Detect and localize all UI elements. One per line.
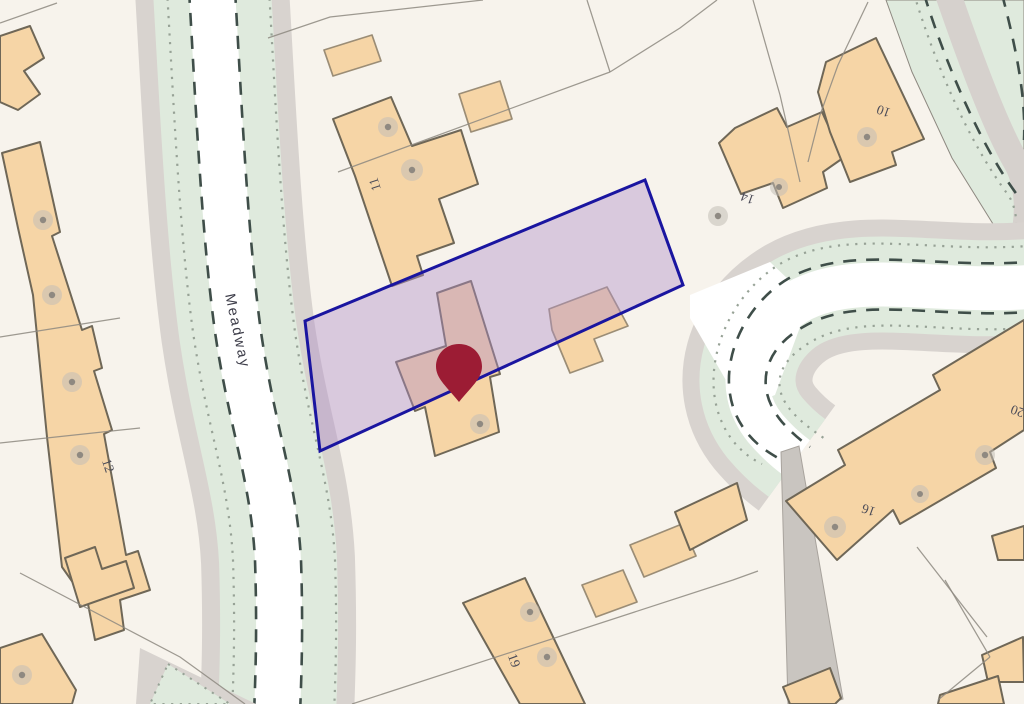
tree-dot <box>824 516 846 538</box>
tree-dot <box>42 285 62 305</box>
tree-dot <box>537 647 557 667</box>
tree-dot <box>975 445 995 465</box>
map[interactable]: Meadway 11 12 14 10 16 19 20 <box>0 0 1024 704</box>
tree-dot <box>12 665 32 685</box>
tree-dot <box>401 159 423 181</box>
tree-dot <box>70 445 90 465</box>
tree-dot <box>911 485 929 503</box>
tree-dot <box>470 414 490 434</box>
tree-dot <box>33 210 53 230</box>
tree-dot <box>708 206 728 226</box>
tree-dot <box>857 127 877 147</box>
tree-dot <box>62 372 82 392</box>
tree-dot <box>770 178 788 196</box>
tree-dot <box>378 117 398 137</box>
tree-dot <box>520 602 540 622</box>
map-canvas[interactable]: Meadway 11 12 14 10 16 19 20 <box>0 0 1024 704</box>
